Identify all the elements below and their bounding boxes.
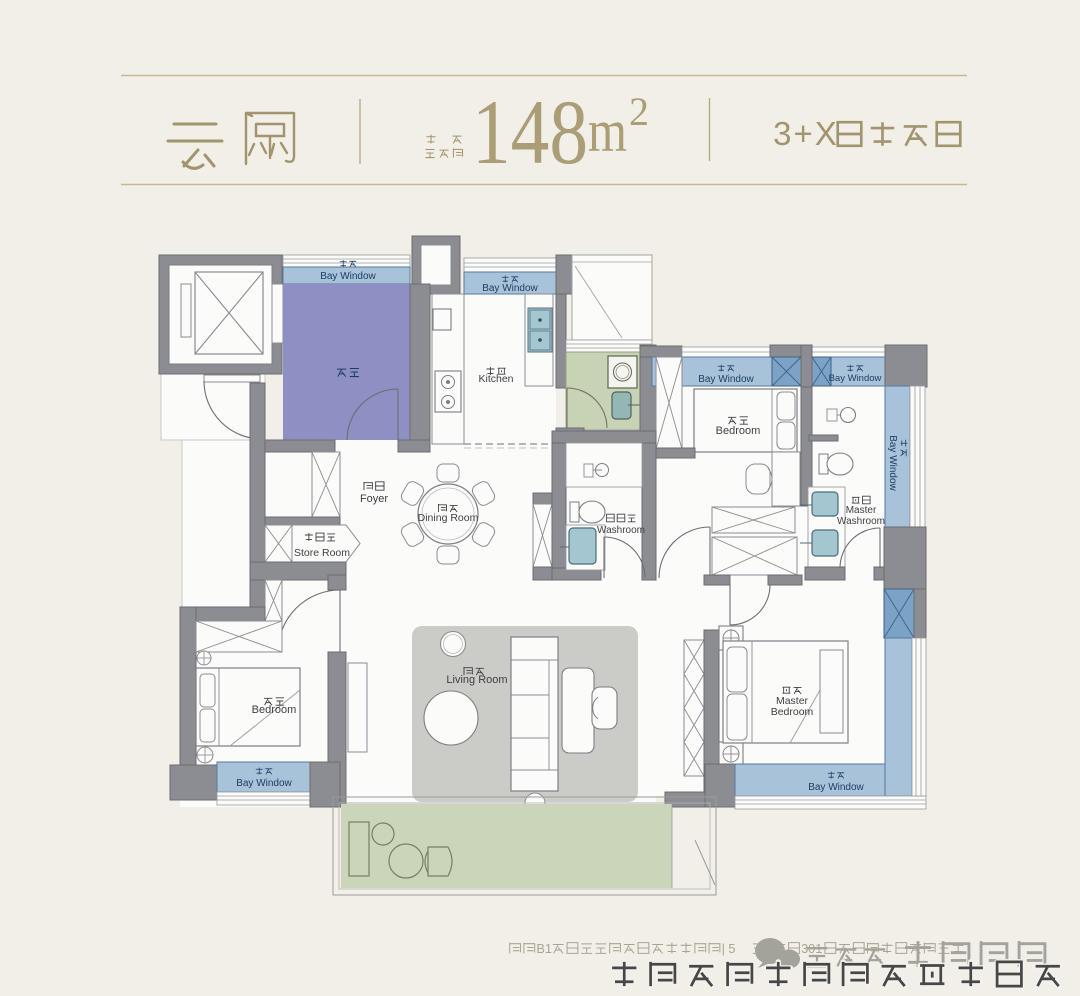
svg-text:Kitchen: Kitchen xyxy=(478,373,513,385)
svg-text:Living Room: Living Room xyxy=(446,674,507,686)
svg-text:Bedroom: Bedroom xyxy=(716,425,761,437)
svg-text:Bedroom: Bedroom xyxy=(252,704,297,716)
svg-text:148: 148 xyxy=(472,81,588,183)
svg-text:Foyer: Foyer xyxy=(360,493,388,505)
svg-text:Master: Master xyxy=(846,505,877,516)
svg-text:Bay Window: Bay Window xyxy=(482,283,538,294)
svg-text:2: 2 xyxy=(629,89,649,134)
svg-text:Washroom: Washroom xyxy=(837,516,885,527)
svg-text:m: m xyxy=(588,98,627,164)
svg-text:| 5: | 5 xyxy=(722,941,736,956)
svg-text:Bay Window: Bay Window xyxy=(887,435,898,491)
svg-text:Washroom: Washroom xyxy=(597,525,645,536)
svg-text:Bay Window: Bay Window xyxy=(320,271,376,282)
svg-text:Bay Window: Bay Window xyxy=(236,778,292,789)
svg-text:Bay Window: Bay Window xyxy=(698,374,754,385)
svg-text:3+X: 3+X xyxy=(773,115,839,152)
svg-text:Bay Window: Bay Window xyxy=(808,782,864,793)
svg-text:Dining Room: Dining Room xyxy=(418,512,479,524)
svg-text:Store Room: Store Room xyxy=(294,547,350,559)
svg-text:B1: B1 xyxy=(536,941,552,956)
svg-text:Bedroom: Bedroom xyxy=(771,706,814,718)
svg-text:Bay Window: Bay Window xyxy=(829,373,882,384)
